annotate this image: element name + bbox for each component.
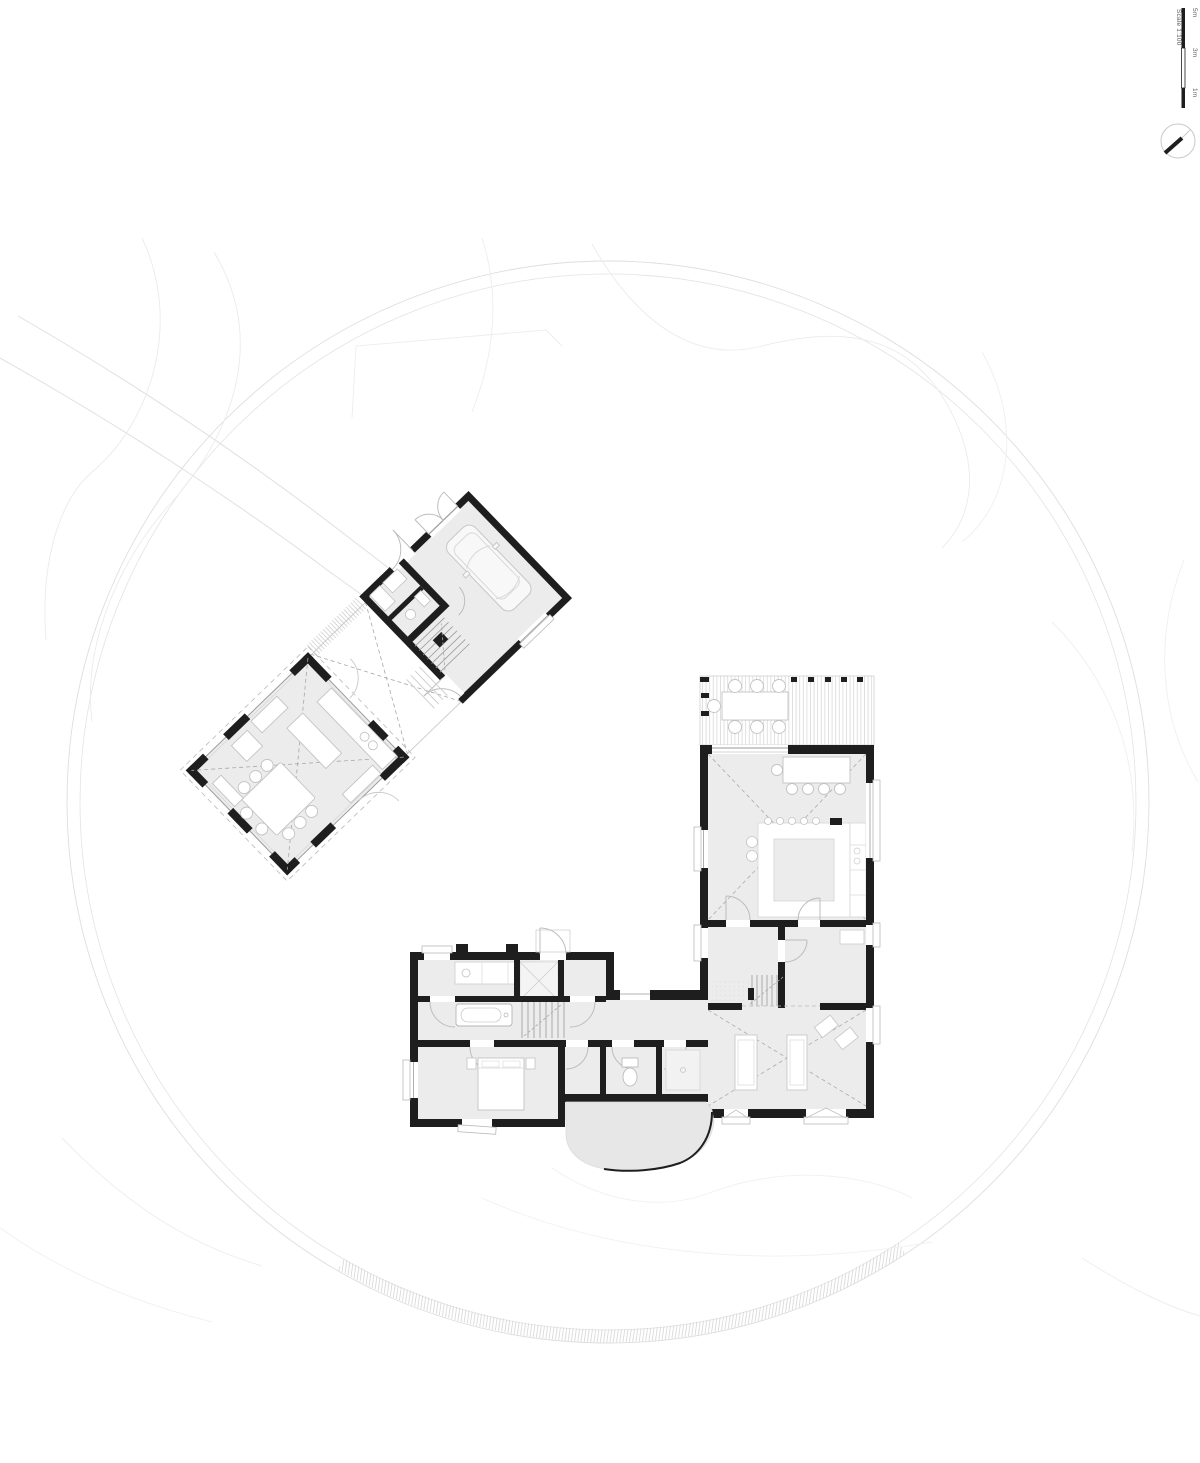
toilet-tank (622, 1058, 638, 1067)
scale-tick-5m: 5m (1191, 8, 1198, 17)
stool (747, 851, 758, 862)
kitchen (747, 818, 867, 918)
chimney-nub (506, 944, 518, 952)
deck-chair (751, 680, 764, 693)
contour-line (1165, 560, 1198, 782)
north-arrow-icon (1161, 124, 1195, 158)
contour-line (0, 1228, 212, 1322)
stool (813, 818, 820, 825)
stool (789, 818, 796, 825)
stool (747, 837, 758, 848)
chair (787, 784, 798, 795)
main-house (403, 676, 880, 1171)
deck-chair (773, 680, 786, 693)
floor-plan-sheet: Scale 1:100 5m 3m 1m (0, 0, 1200, 1463)
dining-table (783, 757, 850, 783)
bed (478, 1058, 524, 1110)
contour-line (962, 352, 1007, 542)
site-contours (0, 238, 1200, 1343)
desk (840, 930, 864, 944)
deck-chair (751, 721, 764, 734)
deck-table (722, 692, 788, 720)
deck-chair (773, 721, 786, 734)
stool (765, 818, 772, 825)
scale-bar: Scale 1:100 5m 3m 1m (1175, 8, 1198, 108)
stone-wall-band (341, 1248, 902, 1336)
chair (835, 784, 846, 795)
hob (830, 818, 842, 825)
deck (700, 676, 874, 745)
toilet (623, 1068, 637, 1086)
scale-tick-3m: 3m (1191, 48, 1198, 57)
bathroom-tub (456, 1004, 512, 1026)
slatted-screen (305, 597, 367, 658)
shower (666, 1050, 700, 1090)
deck-chair (729, 680, 742, 693)
contour-line (90, 252, 240, 722)
deck-chair (708, 700, 721, 713)
stool (801, 818, 808, 825)
scale-label: Scale 1:100 (1175, 9, 1182, 46)
contour-line (1052, 622, 1134, 852)
porch-step (536, 930, 570, 952)
nightstand (467, 1058, 476, 1069)
contour-line (352, 330, 562, 418)
studio-pavilion (180, 631, 445, 895)
terrace (566, 1102, 714, 1171)
contour-line (552, 1168, 912, 1202)
garage-building (325, 476, 571, 722)
contour-line (482, 1198, 932, 1256)
scale-tick-1m: 1m (1191, 88, 1198, 97)
stool (777, 818, 784, 825)
outbuilding-cluster (163, 476, 588, 896)
contour-line (1082, 1258, 1200, 1316)
sink (462, 969, 470, 977)
chair (819, 784, 830, 795)
contour-line (62, 1138, 262, 1266)
deck-chair (729, 721, 742, 734)
contour-line (472, 238, 493, 412)
contour-line (45, 238, 160, 640)
tiled-floor (712, 978, 750, 1006)
chair (772, 765, 783, 776)
chair (803, 784, 814, 795)
chimney-nub (456, 944, 468, 952)
nightstand (526, 1058, 535, 1069)
